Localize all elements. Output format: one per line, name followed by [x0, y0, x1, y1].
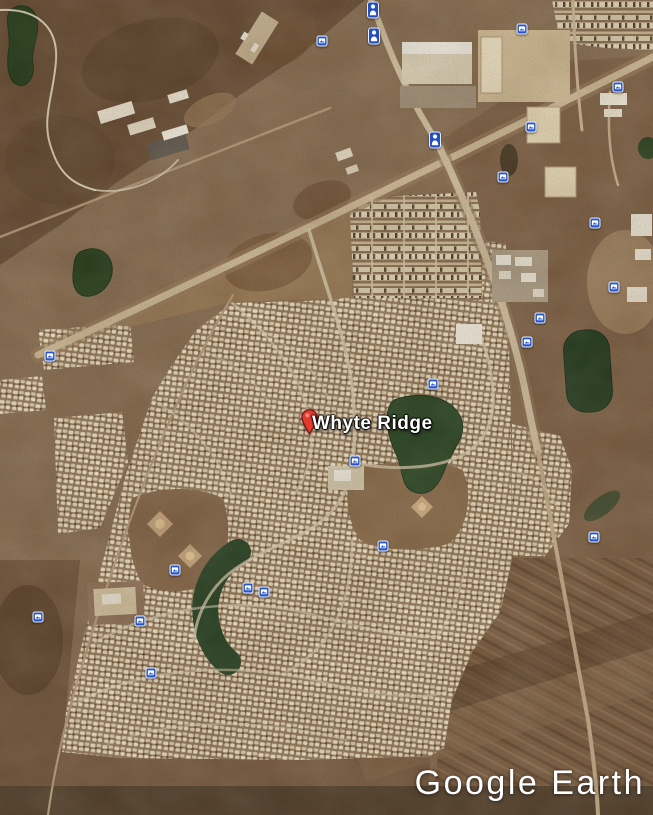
place-label[interactable]: Whyte Ridge	[312, 413, 433, 435]
satellite-map[interactable]	[0, 0, 653, 815]
film-grain	[0, 0, 653, 815]
google-earth-watermark: Google Earth	[415, 764, 645, 803]
google-earth-viewport: Whyte Ridge Google Earth	[0, 0, 653, 815]
